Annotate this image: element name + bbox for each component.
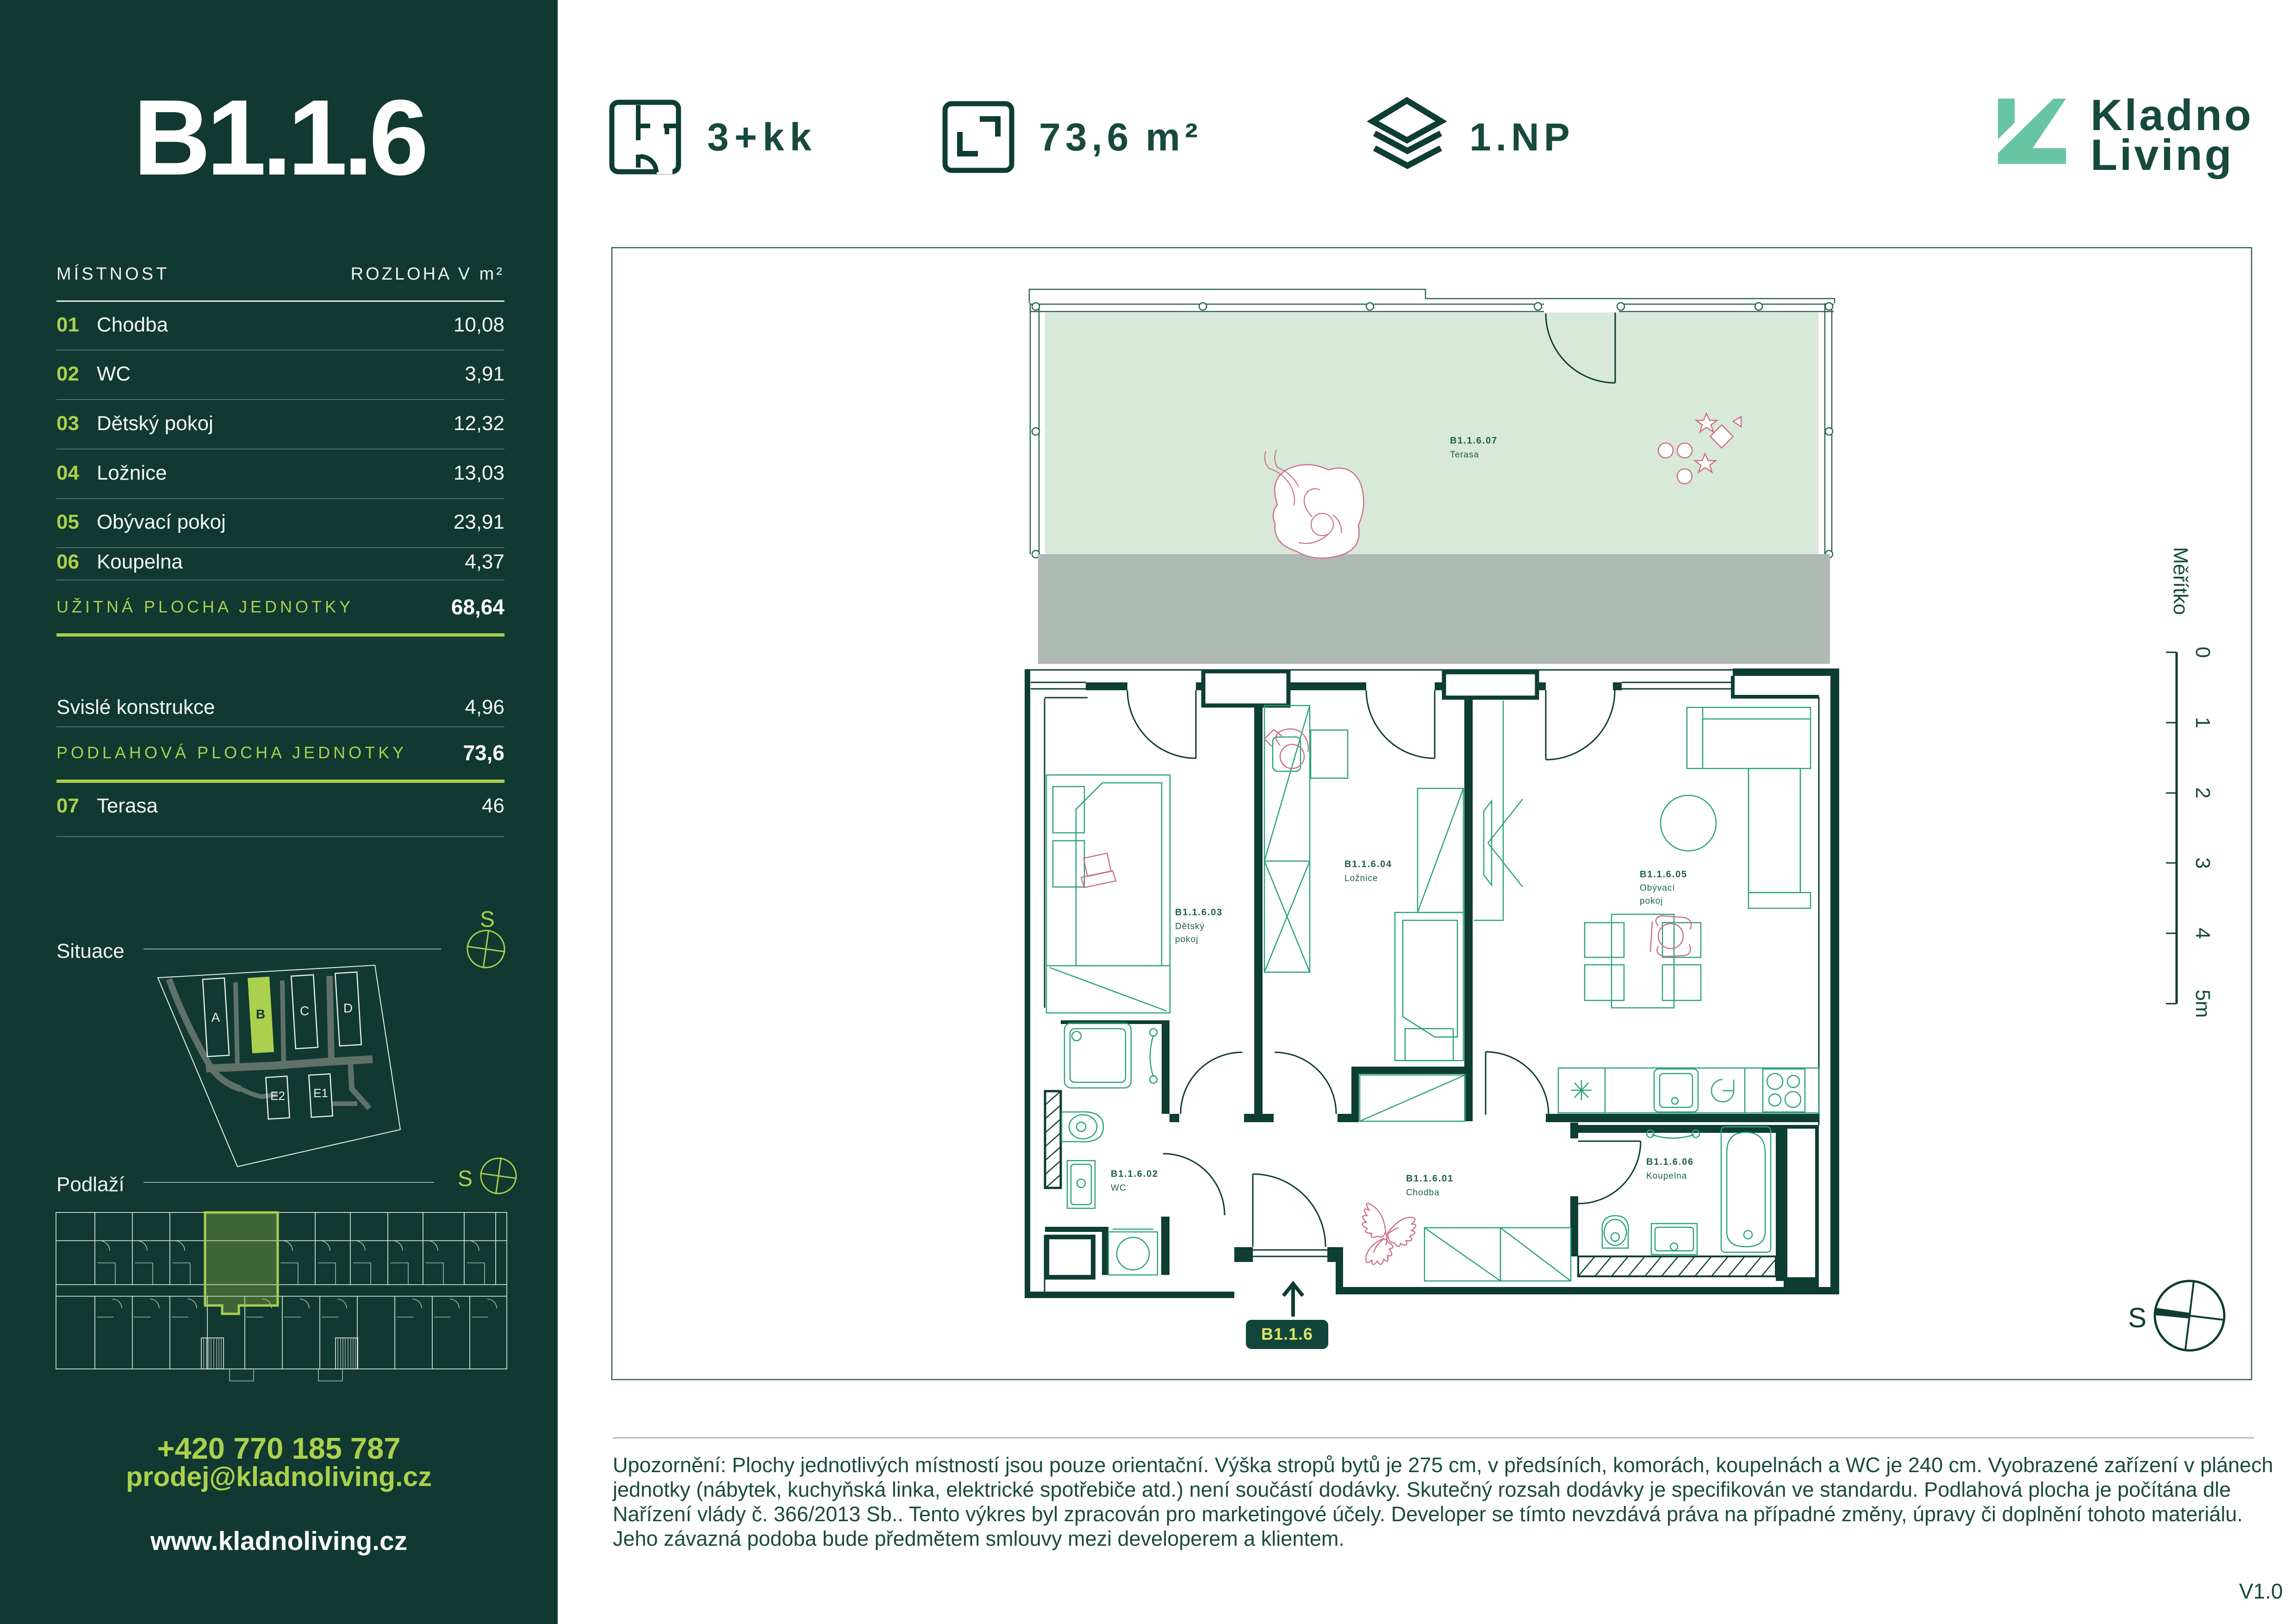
svg-text:4: 4 — [2191, 928, 2214, 939]
svg-text:B1.1.6.05: B1.1.6.05 — [1640, 869, 1687, 880]
svg-text:B1.1.6: B1.1.6 — [1261, 1324, 1313, 1343]
svg-text:E2: E2 — [270, 1089, 285, 1103]
svg-text:S: S — [458, 1167, 473, 1191]
svg-text:3: 3 — [2191, 857, 2214, 868]
svg-text:C: C — [300, 1004, 309, 1018]
svg-text:73,6 m²: 73,6 m² — [1039, 115, 1202, 159]
svg-text:3+kk: 3+kk — [707, 115, 817, 159]
svg-text:Terasa: Terasa — [1450, 450, 1479, 460]
svg-text:Ložnice: Ložnice — [1344, 874, 1378, 883]
svg-text:0: 0 — [2191, 647, 2214, 658]
svg-text:Dětský: Dětský — [1175, 922, 1205, 931]
svg-text:E1: E1 — [313, 1086, 328, 1100]
svg-text:Měřítko: Měřítko — [2169, 547, 2192, 615]
svg-text:1: 1 — [2191, 717, 2214, 728]
svg-text:A: A — [212, 1010, 220, 1024]
svg-text:pokoj: pokoj — [1640, 896, 1663, 906]
svg-text:2: 2 — [2191, 787, 2214, 798]
svg-text:WC: WC — [1111, 1183, 1126, 1193]
svg-text:B1.1.6.01: B1.1.6.01 — [1406, 1174, 1454, 1184]
svg-text:B1.1.6.04: B1.1.6.04 — [1344, 859, 1392, 869]
svg-text:pokoj: pokoj — [1175, 935, 1198, 944]
svg-text:D: D — [343, 1001, 353, 1015]
svg-text:B1.1.6.06: B1.1.6.06 — [1646, 1157, 1694, 1167]
svg-text:Koupelna: Koupelna — [1646, 1171, 1687, 1181]
svg-text:S: S — [480, 907, 495, 932]
svg-text:Chodba: Chodba — [1406, 1188, 1440, 1198]
svg-text:Obývací: Obývací — [1640, 883, 1675, 893]
svg-text:S: S — [2128, 1302, 2147, 1333]
svg-text:B: B — [256, 1007, 265, 1021]
svg-text:B1.1.6.03: B1.1.6.03 — [1175, 907, 1223, 918]
svg-text:5m: 5m — [2191, 989, 2214, 1018]
svg-text:Living: Living — [2091, 131, 2234, 180]
svg-text:B1.1.6.07: B1.1.6.07 — [1450, 436, 1498, 446]
svg-text:B1.1.6.02: B1.1.6.02 — [1111, 1169, 1158, 1179]
svg-text:1.NP: 1.NP — [1469, 115, 1574, 159]
